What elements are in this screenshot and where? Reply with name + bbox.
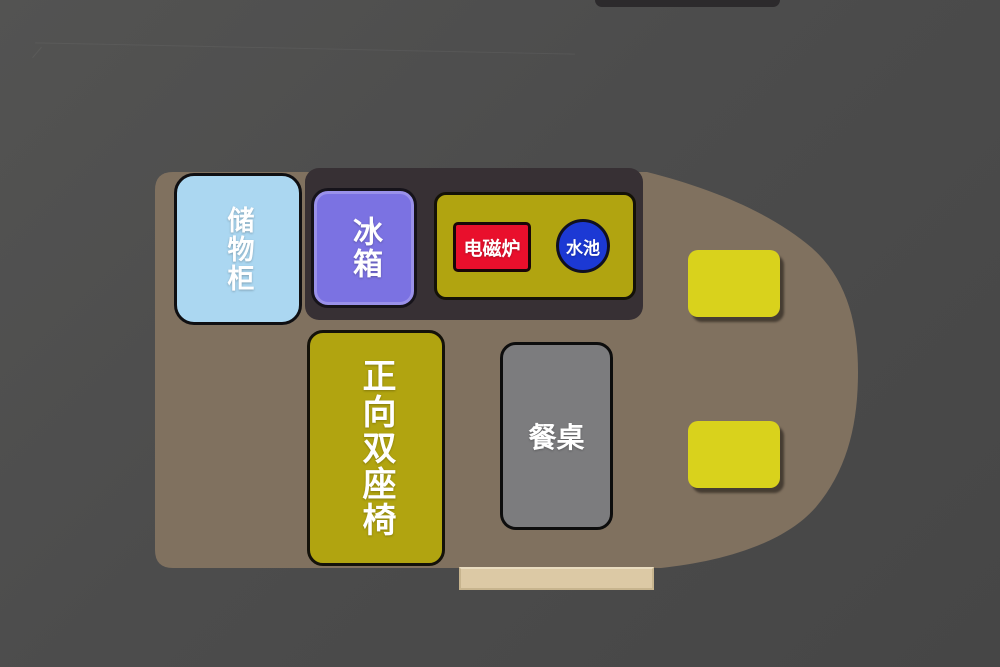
induction-cooker-label: 电磁炉 [463, 234, 520, 261]
rv-floorplan-diagram: 储物柜 冰箱 电磁炉 水池 正向双座椅 餐桌 [0, 0, 1000, 667]
dining-table-box: 餐桌 [500, 342, 613, 530]
storage-cabinet-box: 储物柜 [174, 173, 302, 325]
sink-label: 水池 [566, 234, 600, 259]
storage-cabinet-label: 储物柜 [225, 206, 252, 293]
induction-cooker-box: 电磁炉 [453, 222, 531, 272]
sink-circle: 水池 [556, 219, 610, 273]
entry-step [459, 567, 654, 590]
double-seat-box: 正向双座椅 [307, 330, 445, 566]
cab-seat-passenger [688, 250, 780, 317]
dining-table-label: 餐桌 [528, 416, 584, 456]
fridge-label: 冰箱 [349, 216, 379, 280]
double-seat-label: 正向双座椅 [359, 358, 393, 538]
cab-seat-driver [688, 421, 780, 488]
fridge-box: 冰箱 [314, 191, 414, 305]
